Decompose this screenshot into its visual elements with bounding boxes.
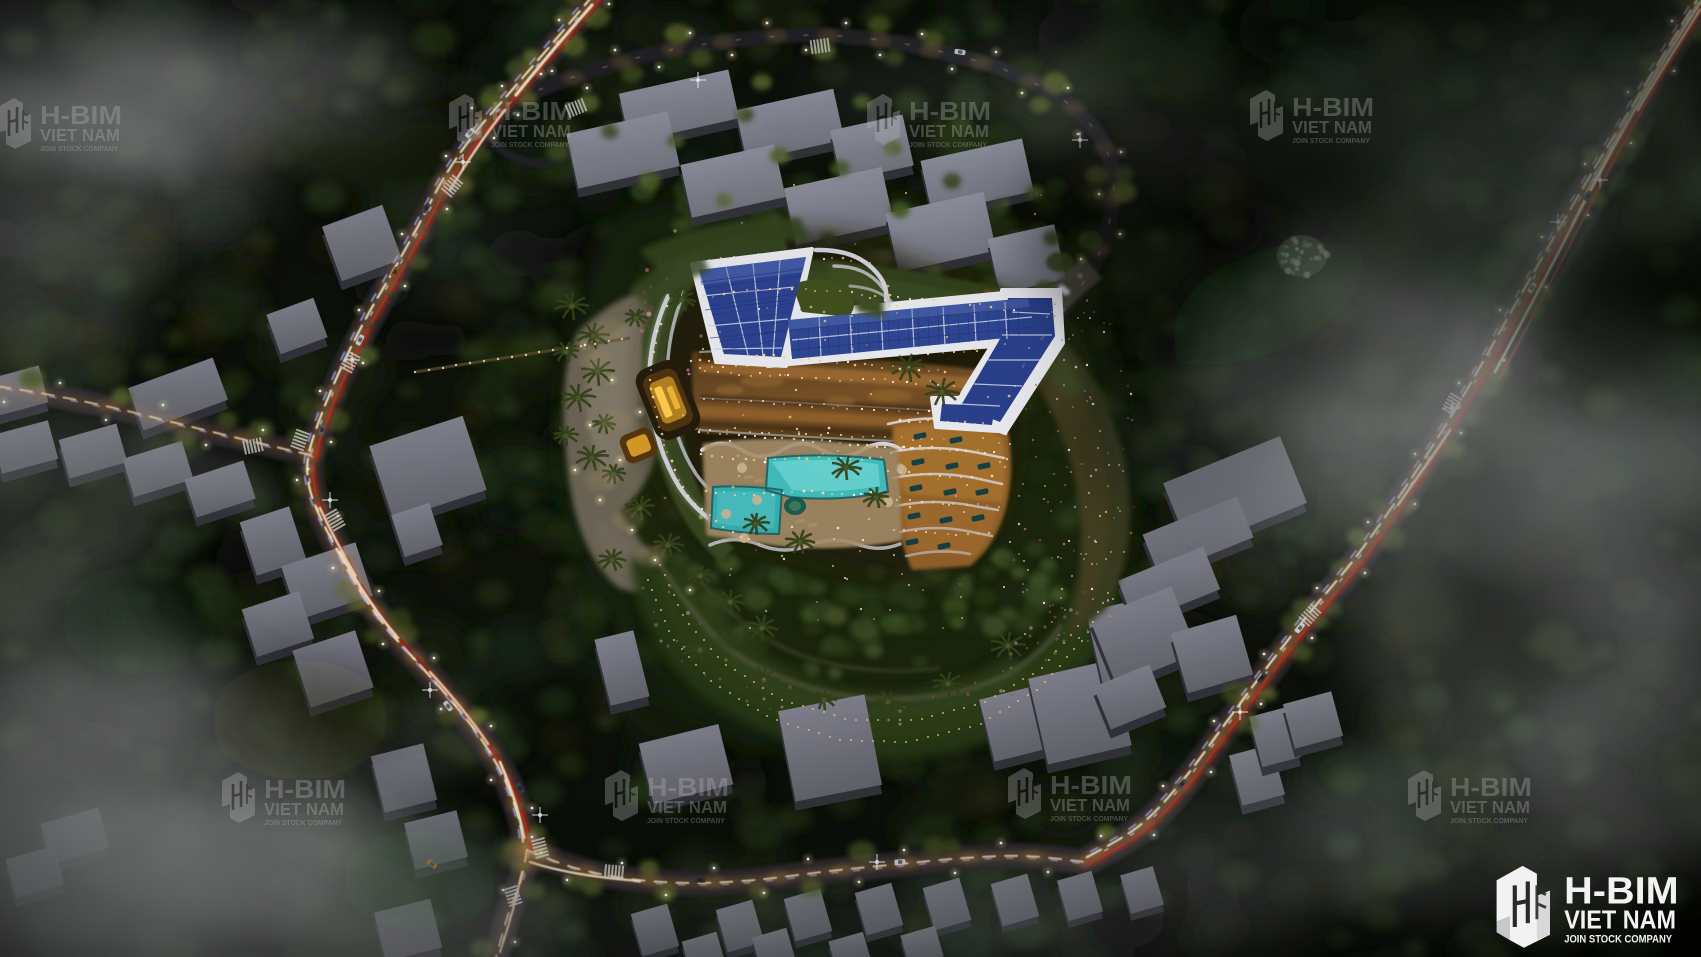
svg-text:VIET NAM: VIET NAM	[1564, 904, 1676, 934]
svg-text:JOIN STOCK COMPANY: JOIN STOCK COMPANY	[1564, 934, 1672, 946]
